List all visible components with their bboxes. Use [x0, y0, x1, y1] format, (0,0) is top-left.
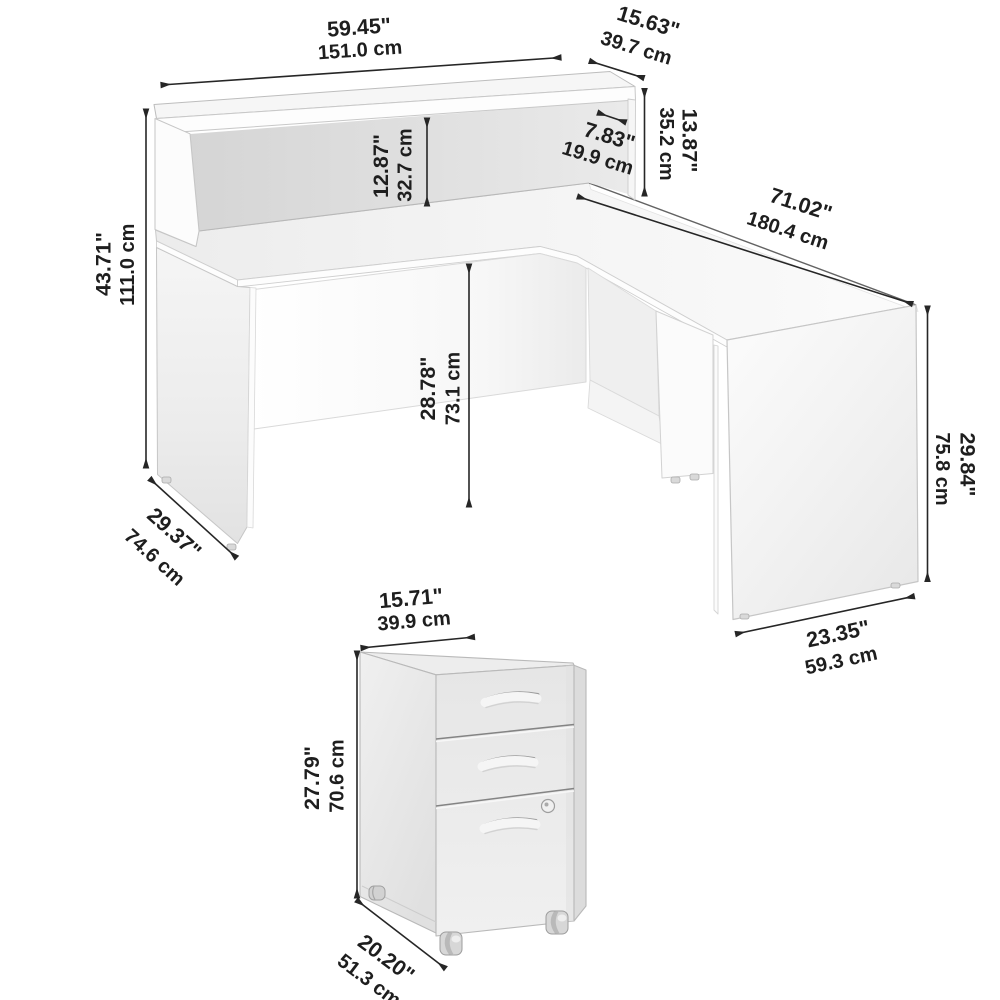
svg-text:27.79": 27.79" [300, 746, 324, 810]
svg-text:75.8 cm: 75.8 cm [931, 432, 953, 505]
svg-text:111.0 cm: 111.0 cm [117, 224, 139, 306]
svg-text:70.6 cm: 70.6 cm [327, 739, 349, 812]
svg-text:43.71": 43.71" [92, 232, 116, 296]
svg-text:32.7 cm: 32.7 cm [395, 128, 417, 201]
svg-text:12.87": 12.87" [369, 134, 393, 198]
svg-text:35.2 cm: 35.2 cm [655, 107, 677, 180]
svg-text:28.78": 28.78" [416, 357, 440, 421]
svg-text:13.87": 13.87" [678, 109, 702, 173]
svg-text:29.84": 29.84" [956, 433, 980, 497]
svg-text:73.1 cm: 73.1 cm [443, 352, 465, 425]
